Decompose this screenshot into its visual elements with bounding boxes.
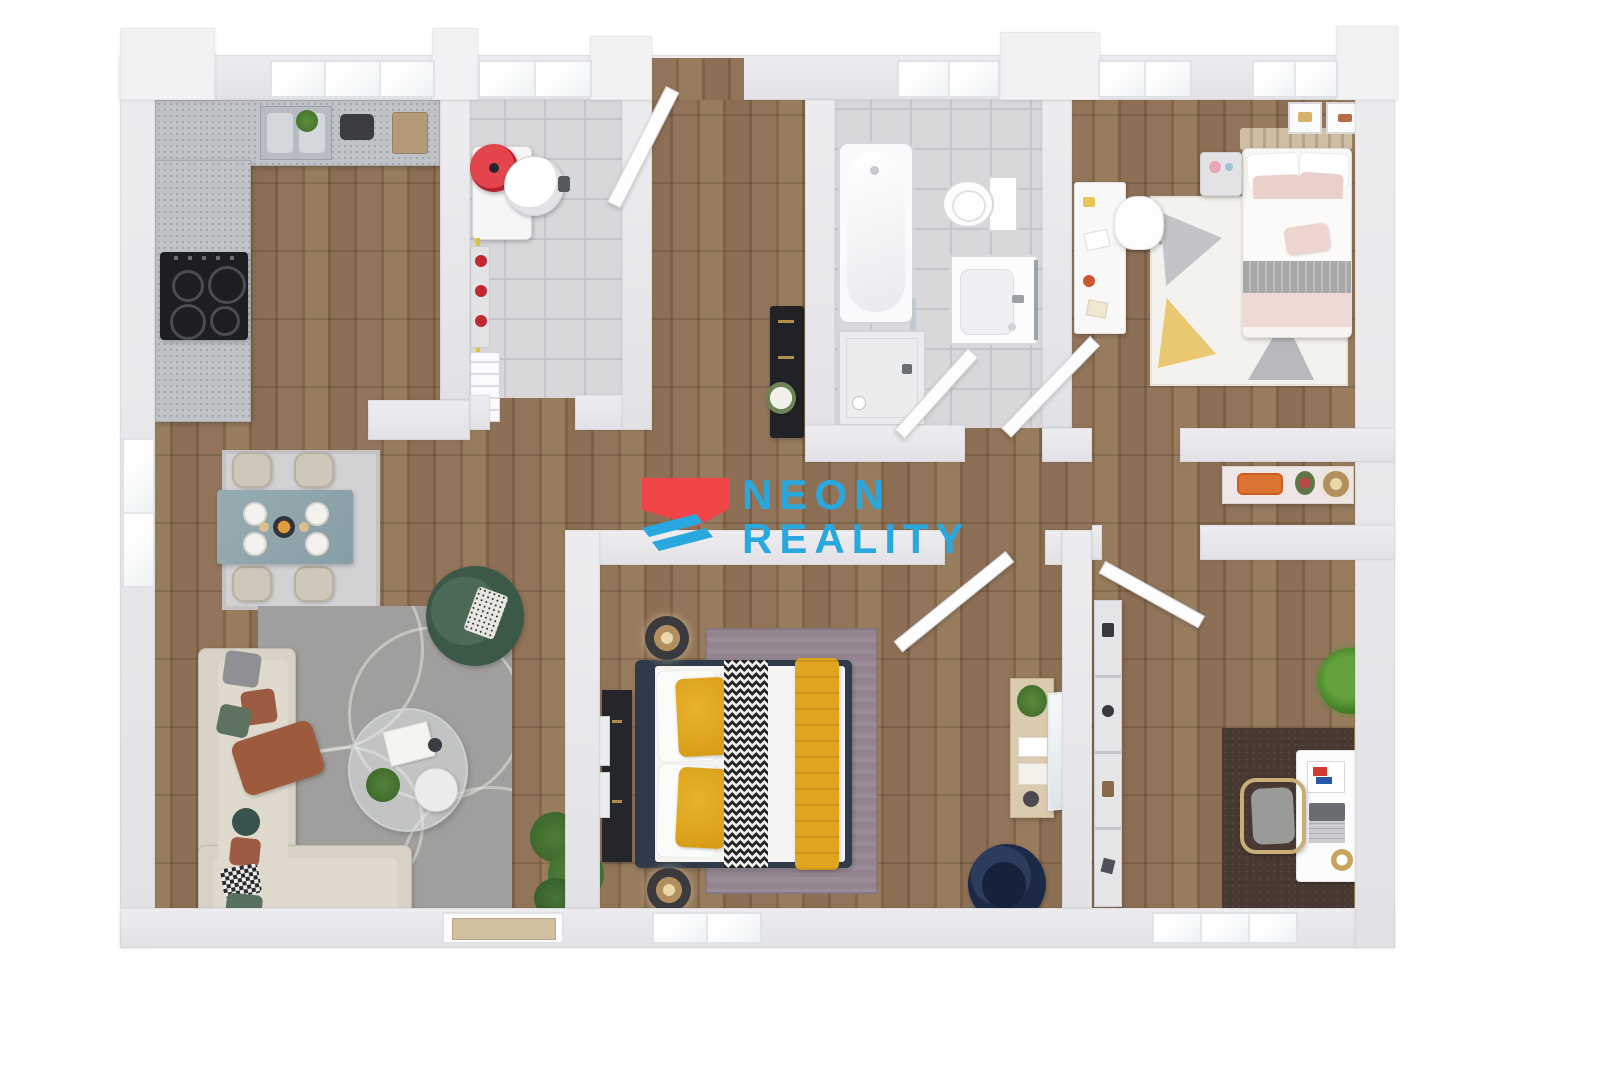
wall-pillar [1000,32,1100,100]
pillow-yellow [675,767,729,850]
wall-pillar [120,28,215,100]
kids-bed [1242,148,1352,338]
valve-red [475,255,487,267]
armchair-cushion [982,862,1026,908]
shower-fixture [902,364,912,374]
shelf-divider [1095,827,1121,830]
art-mark [1298,112,1312,122]
chair-seat [1114,196,1164,250]
shelf-item [1102,623,1114,637]
place-setting [305,502,329,526]
place-setting [305,532,329,556]
duvet-pink [1243,293,1351,329]
kitchen-window [270,60,435,98]
vanity-sink [950,255,1038,345]
wall-bedroom-left [565,530,600,908]
shelf-item [1100,858,1115,874]
wall-pillar [590,36,652,100]
wall-bedroom-top-filler [1045,530,1062,565]
yellow-blanket [795,658,839,870]
laptop [1309,803,1345,821]
dining-chair [294,452,334,488]
wall-office-top [1200,525,1395,560]
brand-name-line1: NEON [742,474,891,516]
decor-dark [1023,791,1039,807]
hall-console-dark [770,306,804,438]
shelf-item [1102,781,1114,797]
gold-cup [1331,849,1353,871]
bookshelf [1094,600,1122,907]
desk-items [1083,229,1110,252]
doormat [452,918,556,940]
wall-hall-bath [805,100,835,462]
toilet-seat [952,190,986,222]
shelf-item [1102,705,1114,717]
kids-desk-chair [1114,196,1168,256]
place-setting [243,532,267,556]
sideboard [1222,466,1354,504]
pillow-yellow [675,677,729,758]
office-bottom-window [1152,912,1298,944]
burner [208,266,246,304]
wall-utility-bottom [470,395,490,430]
brand-name-line2: REALITY [742,518,971,560]
toilet-bowl [942,180,994,228]
food-platter [273,516,295,538]
sink-basin [267,113,293,153]
flower-bouquet [766,382,796,414]
bathroom-window [897,60,1000,98]
bowl-dark [428,738,442,752]
valve-red [475,315,487,327]
wall-right [1355,55,1395,948]
lamp-glow [645,616,689,660]
burner [172,270,204,302]
nightstand-lamp [645,616,689,660]
bathtub-basin [847,152,905,312]
pillow-gray-knit [222,650,262,689]
double-bed [635,660,852,868]
shelf-divider [1095,751,1121,754]
console-handle [612,800,622,803]
counter-items [340,114,374,140]
dining-table [217,490,353,564]
kids-window [1252,60,1338,98]
kitchen-sink [260,106,332,160]
wall-kids-bottom [1042,428,1092,462]
dresser-plant [1017,685,1047,717]
table-plant [366,768,400,802]
candles [259,522,269,532]
kids-nightstand [1200,152,1242,196]
shelf-divider [1095,675,1121,678]
dining-chair [232,566,272,602]
burner [170,304,206,340]
desk-items [1083,197,1095,207]
desk-art-frame [1307,761,1345,793]
water-tank [504,156,564,216]
wall-bath-bottom [805,425,965,462]
burner [210,306,240,336]
candles [299,522,309,532]
boiler-cap [489,163,499,173]
chair-cushion [1251,787,1296,845]
art-mark [1338,114,1352,122]
bathtub-drain [870,166,879,175]
duvet-edge-white [1243,327,1351,337]
desk-items [1086,299,1108,318]
cooktop [160,252,248,340]
counter-plant [296,110,318,132]
kids-window [1098,60,1192,98]
console-gold-detail [778,356,794,359]
books [1018,763,1048,785]
wall-pillar [1336,26,1398,100]
rug-triangle-yellow [1158,298,1216,368]
living-left-window [122,438,155,588]
pillow-green [215,703,253,739]
blanket-gray [1243,261,1351,297]
rug-triangle-gray [1160,212,1222,286]
console-handle [612,720,622,723]
heating-manifold [470,246,490,348]
desk-items [1083,275,1095,287]
nightstand-lamp [647,868,691,912]
counter-board [392,112,428,154]
dining-chair [232,452,272,488]
floor-plan-render: NEON REALITY [0,0,1600,1066]
brand-logo-icon [640,476,732,560]
wall-kitchen-utility [440,100,470,400]
wall-bedroom-office [1062,530,1092,908]
brand-logo: NEON REALITY [640,472,980,564]
bathtub [838,142,914,324]
laptop-keyboard [1309,821,1345,843]
wall-kitchen-stub [368,400,470,440]
shower-drain [852,396,866,410]
pillow-rust [229,837,262,868]
utility-window [478,60,592,98]
wall-pillar [432,28,478,100]
art-red [1313,767,1327,776]
nightstand-item [1225,163,1233,171]
console-gold-detail [778,320,794,323]
bedroom-bottom-window [652,912,762,944]
clock-pink [1209,161,1221,173]
towel-rail [1034,260,1038,340]
art-blue [1316,777,1332,784]
wall-office-top [1092,525,1102,560]
office-chair [1240,778,1306,854]
valve-red [475,285,487,297]
cooktop-knobs [174,256,234,260]
pillow-teal [232,808,260,836]
balcony-doormat [442,912,564,944]
table-lamp [1323,471,1349,497]
chevron-runner [724,660,768,868]
faucet [1012,295,1024,303]
kids-wall-art [1288,102,1322,134]
sink-bowl [960,269,1014,335]
vase-flowers [1295,471,1315,495]
toiletries [1008,323,1016,331]
tank-spout [558,176,570,192]
lamp-glow [647,868,691,912]
wall-kids-bottom [1180,428,1395,462]
dining-chair [294,566,334,602]
side-table-marble [414,768,458,812]
books [1018,737,1048,757]
decor-tray-orange [1237,473,1283,495]
